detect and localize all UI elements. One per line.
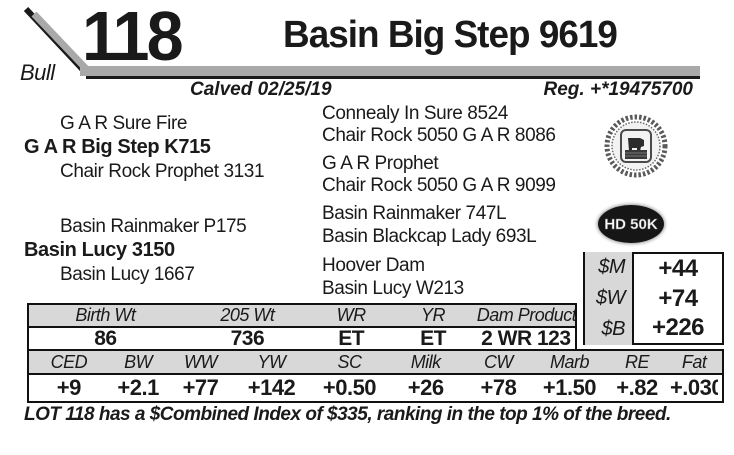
dollar-w-value: +74 bbox=[634, 284, 722, 314]
epd-header-yw: YW bbox=[233, 351, 309, 373]
epd-value-cw: +78 bbox=[462, 375, 535, 401]
weights-header-damprod: Dam Production bbox=[477, 305, 575, 326]
epd-value-fat: +.030 bbox=[670, 375, 719, 401]
epd-header-marb: Marb bbox=[535, 351, 604, 373]
maternal-granddam-sire: Hoover Dam bbox=[322, 255, 425, 276]
weights-header-wr: WR bbox=[313, 305, 389, 326]
epd-value-ww: +77 bbox=[168, 375, 234, 401]
hd50k-label: HD 50K bbox=[604, 216, 657, 233]
page-title: Basin Big Step 9619 bbox=[212, 14, 687, 57]
weights-value-birthwt: 86 bbox=[29, 328, 182, 350]
registration-number: Reg. +*19475700 bbox=[430, 79, 693, 101]
dollar-b-label: $B bbox=[585, 314, 632, 345]
epd-header-bw: BW bbox=[109, 351, 168, 373]
epd-table-header: CED BW WW YW SC Milk CW Marb RE Fat bbox=[29, 351, 722, 375]
dollar-b-value: +226 bbox=[634, 313, 722, 343]
weights-header-yr: YR bbox=[389, 305, 476, 326]
maternal-grandsire: Basin Rainmaker 747L bbox=[322, 203, 506, 224]
weights-header-birthwt: Birth Wt bbox=[29, 305, 182, 326]
dam-dam: Basin Lucy 1667 bbox=[60, 264, 195, 285]
weights-value-205wt: 736 bbox=[182, 328, 313, 350]
weights-table: Birth Wt 205 Wt WR YR Dam Production 86 … bbox=[27, 303, 577, 352]
weights-table-values: 86 736 ET ET 2 WR 123 bbox=[29, 328, 575, 350]
epd-header-sc: SC bbox=[310, 351, 390, 373]
dollar-value-labels: $M $W $B bbox=[583, 252, 632, 345]
maternal-granddam-dam: Basin Lucy W213 bbox=[322, 278, 464, 299]
epd-value-sc: +0.50 bbox=[310, 375, 390, 401]
sex-label: Bull bbox=[20, 60, 55, 86]
epd-header-milk: Milk bbox=[389, 351, 462, 373]
angus-association-seal-icon bbox=[604, 112, 668, 180]
dam-sire: Basin Rainmaker P175 bbox=[60, 216, 246, 237]
dollar-value-box: $M $W $B +44 +74 +226 bbox=[583, 252, 724, 345]
paternal-granddam-sire: G A R Prophet bbox=[322, 153, 438, 174]
epd-header-re: RE bbox=[604, 351, 670, 373]
weights-table-header: Birth Wt 205 Wt WR YR Dam Production bbox=[29, 305, 575, 328]
dollar-m-value: +44 bbox=[634, 254, 722, 284]
weights-value-damprod: 2 WR 123 bbox=[477, 328, 575, 350]
epd-value-ced: +9 bbox=[29, 375, 109, 401]
hd50k-badge: HD 50K bbox=[598, 205, 664, 243]
weights-value-wr: ET bbox=[313, 328, 389, 350]
dollar-m-label: $M bbox=[585, 252, 632, 283]
dollar-w-label: $W bbox=[585, 283, 632, 314]
epd-value-yw: +142 bbox=[233, 375, 309, 401]
epd-value-bw: +2.1 bbox=[109, 375, 168, 401]
epd-value-marb: +1.50 bbox=[535, 375, 604, 401]
weights-value-yr: ET bbox=[389, 328, 476, 350]
sire-dam: Chair Rock Prophet 3131 bbox=[60, 161, 264, 182]
epd-value-milk: +26 bbox=[389, 375, 462, 401]
paternal-granddam: Chair Rock 5050 G A R 8086 bbox=[322, 125, 556, 146]
epd-header-fat: Fat bbox=[670, 351, 719, 373]
epd-table-values: +9 +2.1 +77 +142 +0.50 +26 +78 +1.50 +.8… bbox=[29, 375, 722, 401]
sire-name: G A R Big Step K715 bbox=[24, 137, 211, 158]
dollar-value-values: +44 +74 +226 bbox=[632, 252, 724, 345]
lot-footnote: LOT 118 has a $Combined Index of $335, r… bbox=[24, 404, 671, 426]
weights-header-205wt: 205 Wt bbox=[182, 305, 313, 326]
dam-name: Basin Lucy 3150 bbox=[24, 240, 175, 261]
epd-header-ced: CED bbox=[29, 351, 109, 373]
lot-number: 118 bbox=[82, 0, 181, 72]
sire-sire: G A R Sure Fire bbox=[60, 113, 187, 134]
epd-header-cw: CW bbox=[462, 351, 535, 373]
paternal-granddam-dam: Chair Rock 5050 G A R 9099 bbox=[322, 175, 556, 196]
catalog-page: 118 Bull Basin Big Step 9619 Calved 02/2… bbox=[0, 0, 734, 455]
maternal-granddam: Basin Blackcap Lady 693L bbox=[322, 226, 536, 247]
paternal-grandsire: Connealy In Sure 8524 bbox=[322, 103, 508, 124]
calved-date: Calved 02/25/19 bbox=[190, 79, 332, 101]
epd-header-ww: WW bbox=[168, 351, 234, 373]
epd-value-re: +.82 bbox=[604, 375, 670, 401]
epd-table: CED BW WW YW SC Milk CW Marb RE Fat +9 +… bbox=[27, 349, 724, 403]
